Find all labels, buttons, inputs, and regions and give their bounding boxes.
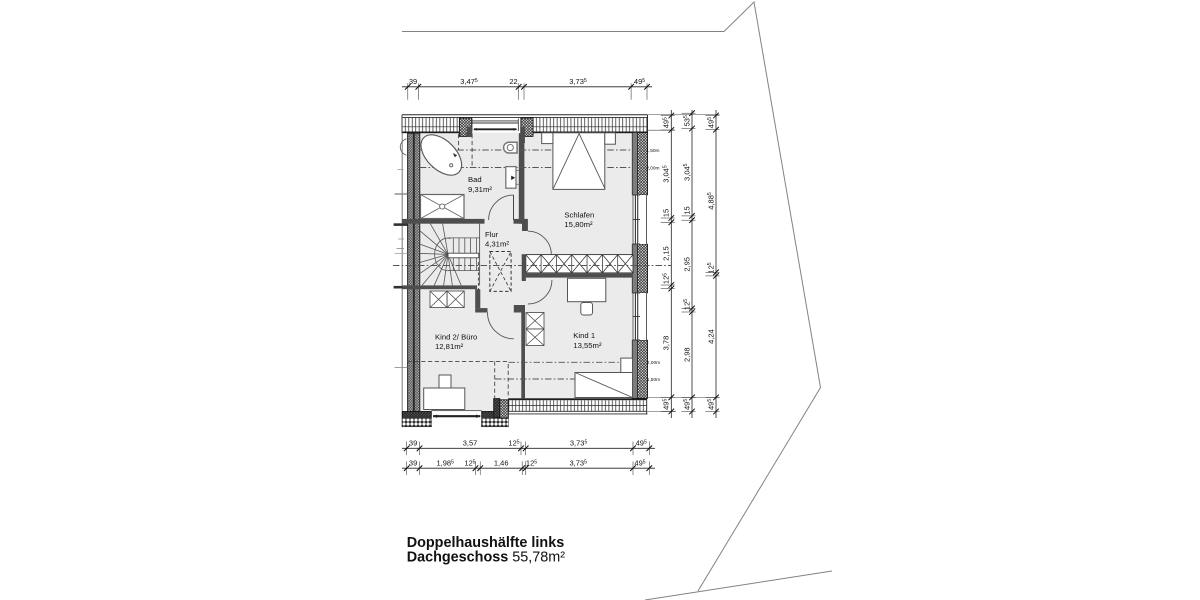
svg-text:4,31m²: 4,31m² — [485, 239, 509, 248]
svg-text:Bad: Bad — [468, 175, 482, 184]
svg-text:39: 39 — [409, 459, 417, 468]
svg-text:2,95: 2,95 — [682, 257, 691, 272]
svg-text:Kind 1: Kind 1 — [573, 331, 595, 340]
svg-text:Dachgeschoss 55,78m²: Dachgeschoss 55,78m² — [407, 550, 566, 566]
svg-text:2,00m: 2,00m — [646, 165, 659, 171]
svg-text:Kind 2/ Büro: Kind 2/ Büro — [435, 332, 477, 341]
svg-text:2,15: 2,15 — [662, 246, 671, 261]
svg-text:Flur: Flur — [485, 230, 499, 239]
svg-text:2,98: 2,98 — [682, 347, 691, 362]
svg-text:39: 39 — [409, 439, 417, 448]
svg-text:12,81m²: 12,81m² — [435, 342, 464, 351]
svg-text:9,31m²: 9,31m² — [468, 185, 492, 194]
svg-text:Schlafen: Schlafen — [564, 211, 594, 220]
svg-text:15: 15 — [662, 209, 671, 217]
svg-text:4,24: 4,24 — [706, 329, 715, 344]
svg-text:1,46: 1,46 — [494, 459, 509, 468]
svg-text:13,55m²: 13,55m² — [573, 341, 602, 350]
svg-text:3,57: 3,57 — [463, 439, 478, 448]
svg-text:2,00m: 2,00m — [647, 360, 660, 366]
svg-text:3,78: 3,78 — [662, 336, 671, 351]
svg-text:Doppelhaushälfte links: Doppelhaushälfte links — [407, 535, 565, 551]
svg-text:15,80m²: 15,80m² — [564, 220, 593, 229]
svg-text:22: 22 — [509, 77, 517, 86]
svg-text:39: 39 — [409, 77, 417, 86]
svg-text:1,50m: 1,50m — [646, 148, 659, 154]
svg-text:15: 15 — [682, 206, 691, 214]
svg-text:1,50m: 1,50m — [647, 377, 660, 383]
